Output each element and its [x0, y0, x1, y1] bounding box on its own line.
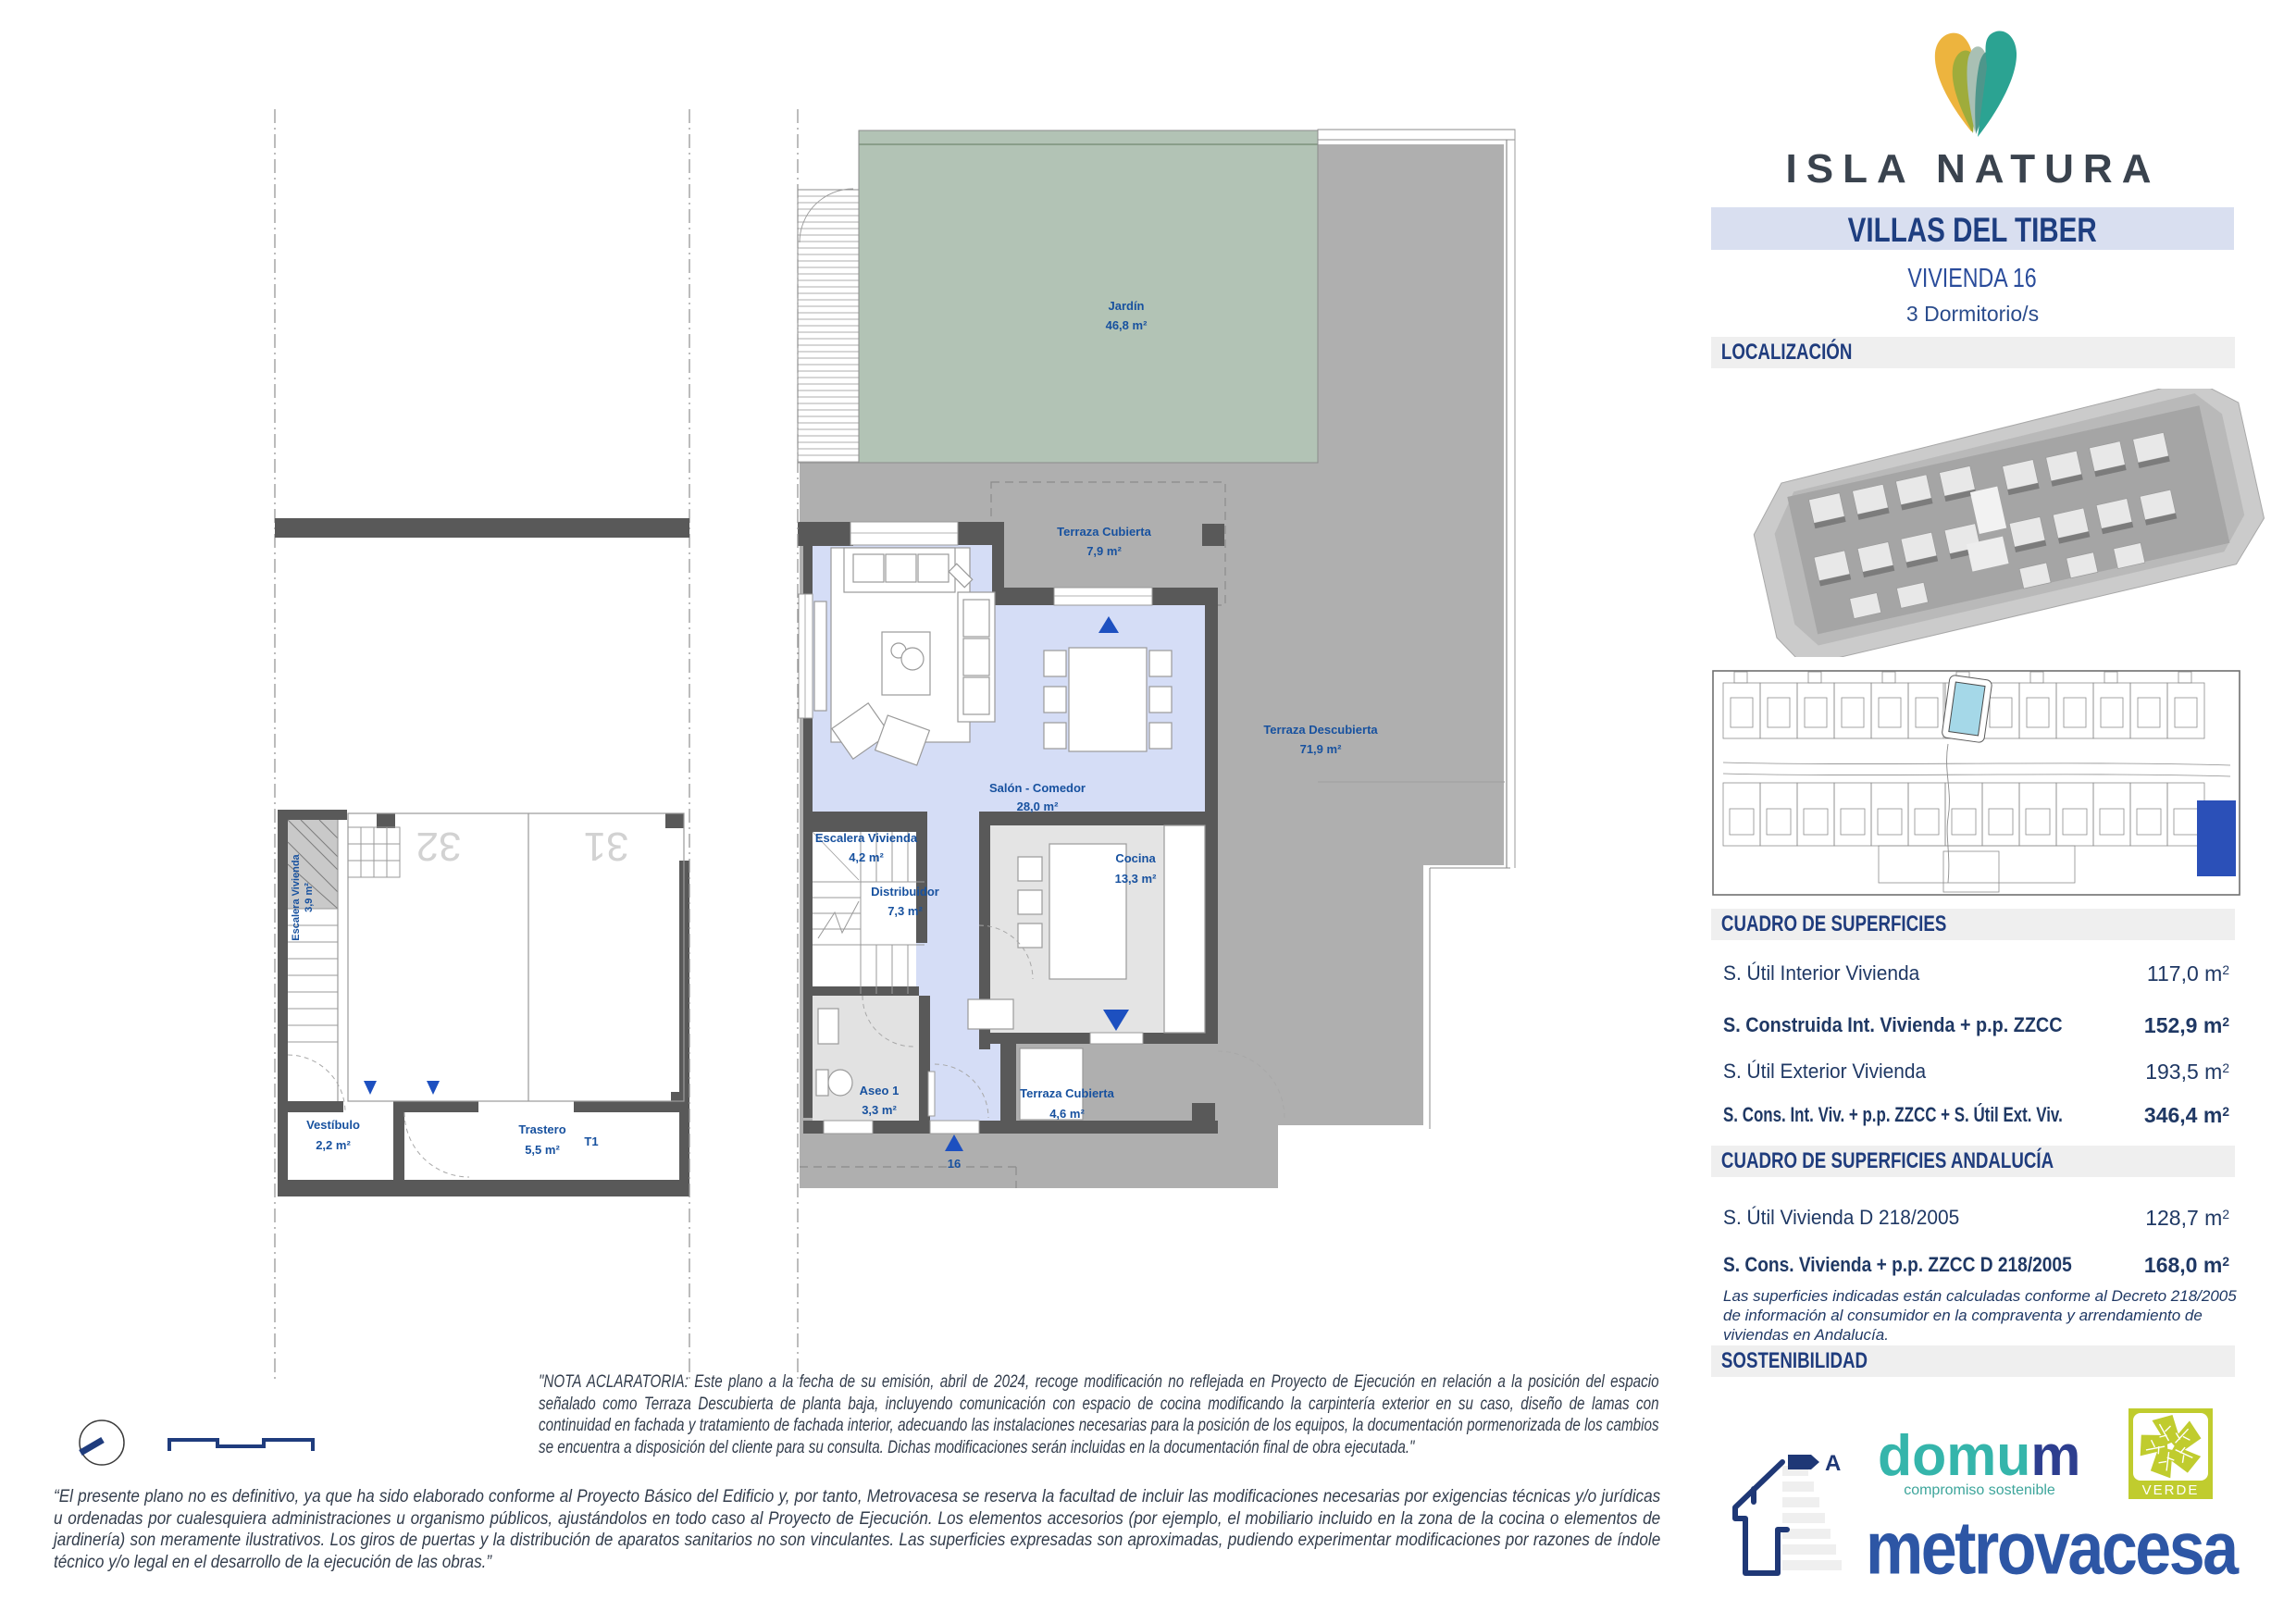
svg-text:T1: T1: [584, 1134, 598, 1148]
svg-text:4,2 m²: 4,2 m²: [849, 850, 884, 864]
svg-text:Escalera Vivienda: Escalera Vivienda: [291, 853, 302, 940]
svg-text:32: 32: [416, 824, 462, 869]
svg-text:Cocina: Cocina: [1115, 851, 1156, 865]
svg-text:Escalera Vivienda: Escalera Vivienda: [815, 831, 918, 845]
svg-text:Distribuidor: Distribuidor: [871, 885, 939, 899]
svg-text:4,6 m²: 4,6 m²: [1049, 1107, 1085, 1121]
svg-text:Salón - Comedor: Salón - Comedor: [989, 781, 1086, 795]
svg-text:13,3 m²: 13,3 m²: [1115, 872, 1157, 886]
svg-text:Vestíbulo: Vestíbulo: [306, 1118, 360, 1132]
svg-text:3,9 m²: 3,9 m²: [304, 883, 315, 912]
svg-text:5,5 m²: 5,5 m²: [525, 1143, 560, 1157]
svg-text:7,3 m²: 7,3 m²: [887, 904, 923, 918]
svg-text:Terraza Cubierta: Terraza Cubierta: [1057, 525, 1151, 539]
svg-text:2,2 m²: 2,2 m²: [316, 1138, 351, 1152]
svg-text:31: 31: [584, 824, 629, 869]
svg-text:Jardín: Jardín: [1108, 299, 1144, 313]
svg-text:7,9 m²: 7,9 m²: [1086, 544, 1122, 558]
svg-text:VERDE: VERDE: [2142, 1482, 2200, 1498]
svg-text:Terraza Cubierta: Terraza Cubierta: [1020, 1086, 1114, 1100]
svg-text:Trastero: Trastero: [518, 1122, 565, 1136]
svg-text:Terraza Descubierta: Terraza Descubierta: [1263, 723, 1378, 737]
svg-text:71,9 m²: 71,9 m²: [1300, 742, 1342, 756]
svg-text:16: 16: [948, 1157, 961, 1171]
svg-text:46,8 m²: 46,8 m²: [1106, 318, 1148, 332]
svg-text:3,3 m²: 3,3 m²: [862, 1103, 897, 1117]
svg-text:28,0 m²: 28,0 m²: [1017, 800, 1059, 813]
svg-text:A: A: [1825, 1451, 1841, 1476]
svg-text:Aseo 1: Aseo 1: [860, 1084, 900, 1097]
